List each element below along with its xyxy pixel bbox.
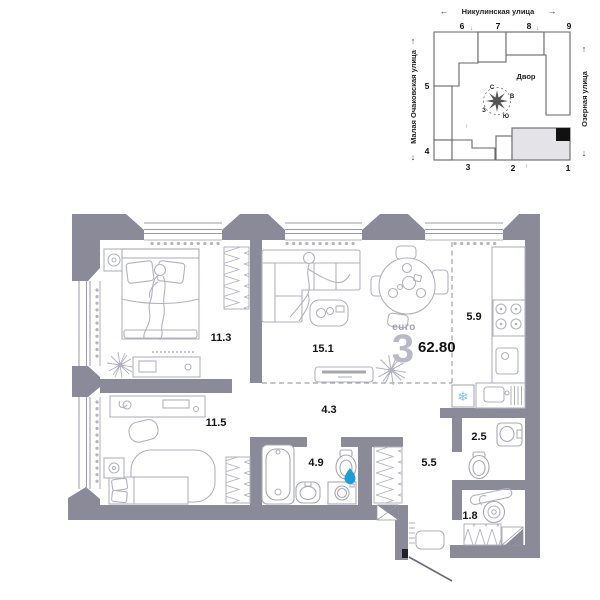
street-top-label: Никулинская улица	[462, 7, 535, 16]
building-5	[434, 86, 452, 140]
building-number-6: 6	[460, 21, 465, 31]
building-6	[434, 32, 478, 86]
washing-machine	[328, 482, 356, 504]
floor-plan: ❄	[68, 214, 540, 581]
apartment-summary: euro 3 62.80	[392, 322, 456, 371]
wardrobe	[226, 457, 250, 503]
shelving	[464, 524, 501, 545]
building-number-5: 5	[425, 81, 430, 91]
room-area-storage: 1.8	[462, 510, 477, 522]
window-glass	[144, 230, 503, 234]
bedroom-1-furniture	[104, 247, 249, 378]
compass-south: Ю	[503, 114, 509, 120]
doormat	[416, 531, 444, 549]
double-bed	[122, 249, 199, 339]
arrow-up-icon: ↑	[411, 36, 416, 46]
corner-wedge	[502, 527, 523, 545]
entrance-tick-icon: ↓	[470, 26, 473, 32]
bathroom-sink	[296, 482, 320, 503]
toilet	[469, 452, 489, 479]
compass-north: С	[490, 85, 495, 91]
building-1-entrance-marker	[556, 128, 570, 141]
speaker	[104, 249, 124, 271]
arrow-down-icon: ↓	[411, 152, 416, 162]
desk-chair	[127, 418, 160, 444]
coffee-table	[310, 300, 348, 326]
building-2	[496, 136, 512, 160]
room-area-hallway: 4.3	[321, 404, 336, 416]
street-left-label: Малая Очаковская улица	[409, 49, 418, 144]
floor-plan-page: ← Никулинская улица → ↑ Малая Очаковская…	[0, 0, 600, 600]
wc-sink	[497, 423, 522, 446]
dining-table	[371, 246, 448, 328]
apartment-total-area: 62.80	[418, 339, 456, 356]
desk-with-computer	[110, 396, 205, 417]
building-number-4: 4	[425, 146, 430, 156]
bedroom-2-furniture	[104, 396, 250, 504]
room-area-bedroom-1: 11.3	[211, 332, 232, 344]
bathroom-fixtures	[262, 445, 356, 504]
entrance-tick-icon: ↓	[536, 26, 539, 32]
building-number-9: 9	[567, 21, 572, 31]
corner-wedge	[377, 505, 398, 520]
building-number-2: 2	[511, 163, 516, 173]
entrance-door-leaf	[409, 557, 452, 581]
bathtub	[262, 445, 294, 504]
building-number-3: 3	[466, 162, 471, 172]
building-3	[452, 140, 495, 160]
plant-icon	[107, 352, 133, 378]
sink-counter	[476, 383, 525, 408]
building-8	[506, 32, 544, 55]
apartment-rooms-count: 3	[392, 327, 414, 371]
building-number-7: 7	[496, 21, 501, 31]
courtyard-label: Двор	[516, 72, 535, 81]
entrance-tick-icon: ↑	[525, 164, 528, 170]
site-plan: ← Никулинская улица → ↑ Малая Очаковская…	[409, 6, 589, 173]
arrow-up-icon: ↑	[582, 44, 587, 54]
speaker	[104, 458, 124, 478]
chair	[396, 246, 416, 259]
kitchen-furniture: ❄	[452, 247, 525, 408]
compass-star-icon	[486, 90, 508, 112]
room-area-living-room: 15.1	[312, 343, 333, 355]
fridge: ❄	[452, 385, 474, 407]
snowflake-icon: ❄	[458, 389, 469, 404]
room-area-kitchen: 5.9	[466, 311, 481, 323]
entrance-tick-icon: ↑	[465, 124, 468, 130]
compass-rose: С В З Ю	[482, 85, 515, 120]
door-jamb	[402, 549, 408, 558]
arrow-down-icon: ↓	[582, 148, 587, 158]
street-right-label: Озерная улица	[580, 70, 589, 127]
building-number-1: 1	[566, 163, 571, 173]
room-area-bedroom-2: 11.5	[206, 417, 227, 429]
building-number-8: 8	[527, 21, 532, 31]
room-area-corridor: 5.5	[421, 457, 436, 469]
wardrobe	[224, 247, 249, 309]
hall-wardrobe	[374, 447, 402, 503]
single-bed	[109, 477, 188, 504]
entrance	[377, 505, 452, 581]
desk	[133, 352, 200, 377]
coat-hooks	[409, 523, 415, 543]
building-4	[434, 140, 452, 160]
room-area-wc: 2.5	[471, 431, 486, 443]
arrow-right-icon: →	[548, 6, 557, 16]
living-room-furniture	[262, 246, 448, 385]
building-9	[544, 32, 570, 115]
room-area-bathroom: 4.9	[308, 457, 323, 469]
compass-west: З	[482, 108, 486, 114]
tv-console	[315, 367, 373, 382]
building-7	[478, 32, 506, 62]
compass-east: В	[510, 94, 515, 100]
arrow-left-icon: ←	[440, 6, 449, 16]
